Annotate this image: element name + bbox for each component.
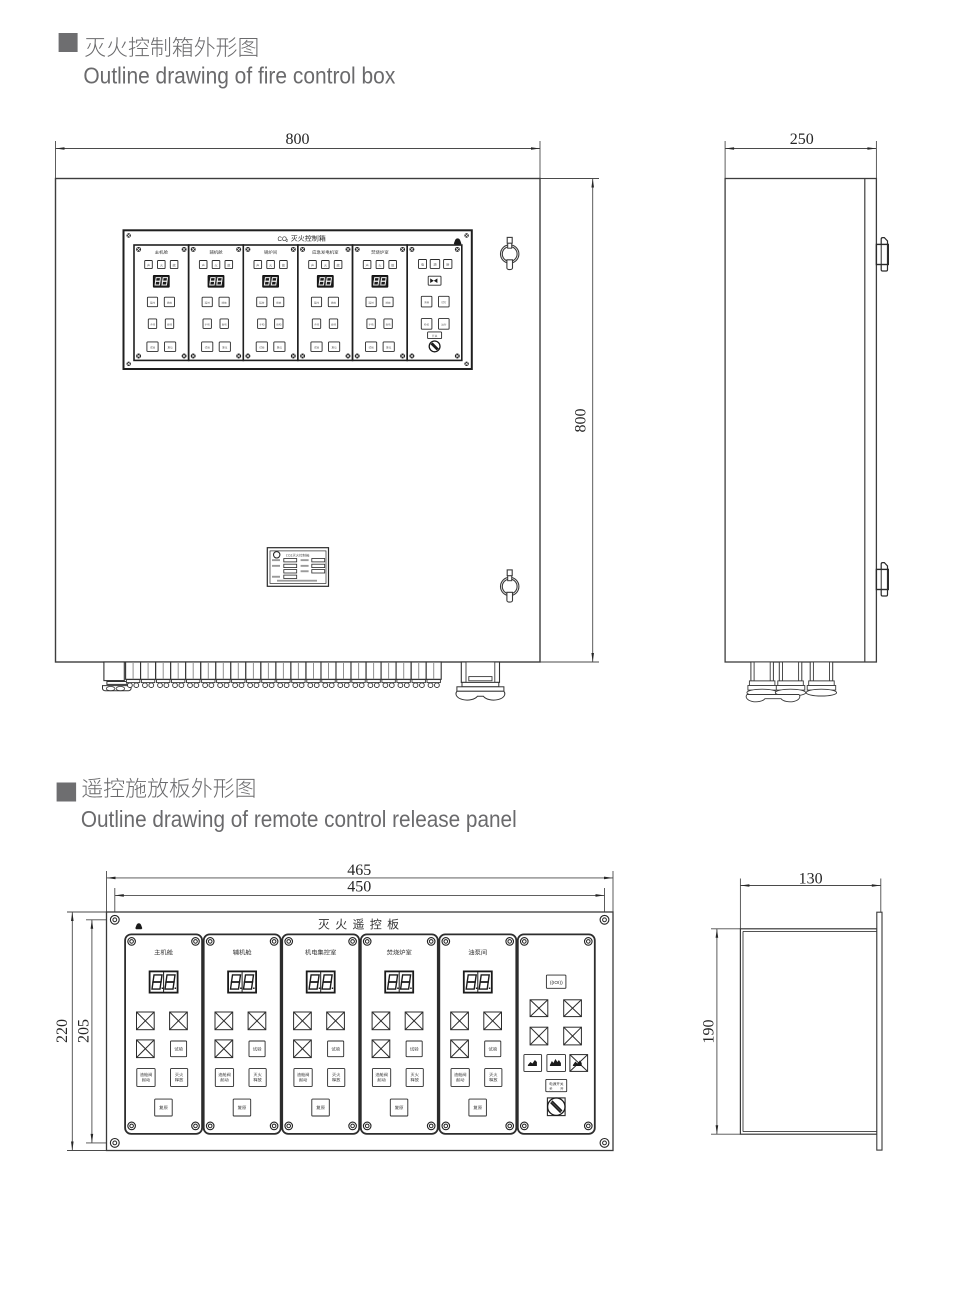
svg-text:Outline drawing of fire contro: Outline drawing of fire control box xyxy=(83,63,395,89)
svg-text:800: 800 xyxy=(286,131,310,148)
svg-text:Outline drawing of remote cont: Outline drawing of remote control releas… xyxy=(81,806,517,832)
svg-text:205: 205 xyxy=(76,1019,93,1043)
svg-text:190: 190 xyxy=(701,1020,718,1044)
svg-text:((IOI)): ((IOI)) xyxy=(550,980,563,986)
svg-text:465: 465 xyxy=(347,862,371,879)
svg-text:130: 130 xyxy=(799,871,823,888)
svg-text:800: 800 xyxy=(573,409,590,433)
svg-text:450: 450 xyxy=(347,878,371,895)
svg-text:220: 220 xyxy=(54,1019,71,1043)
svg-text:250: 250 xyxy=(790,131,814,148)
